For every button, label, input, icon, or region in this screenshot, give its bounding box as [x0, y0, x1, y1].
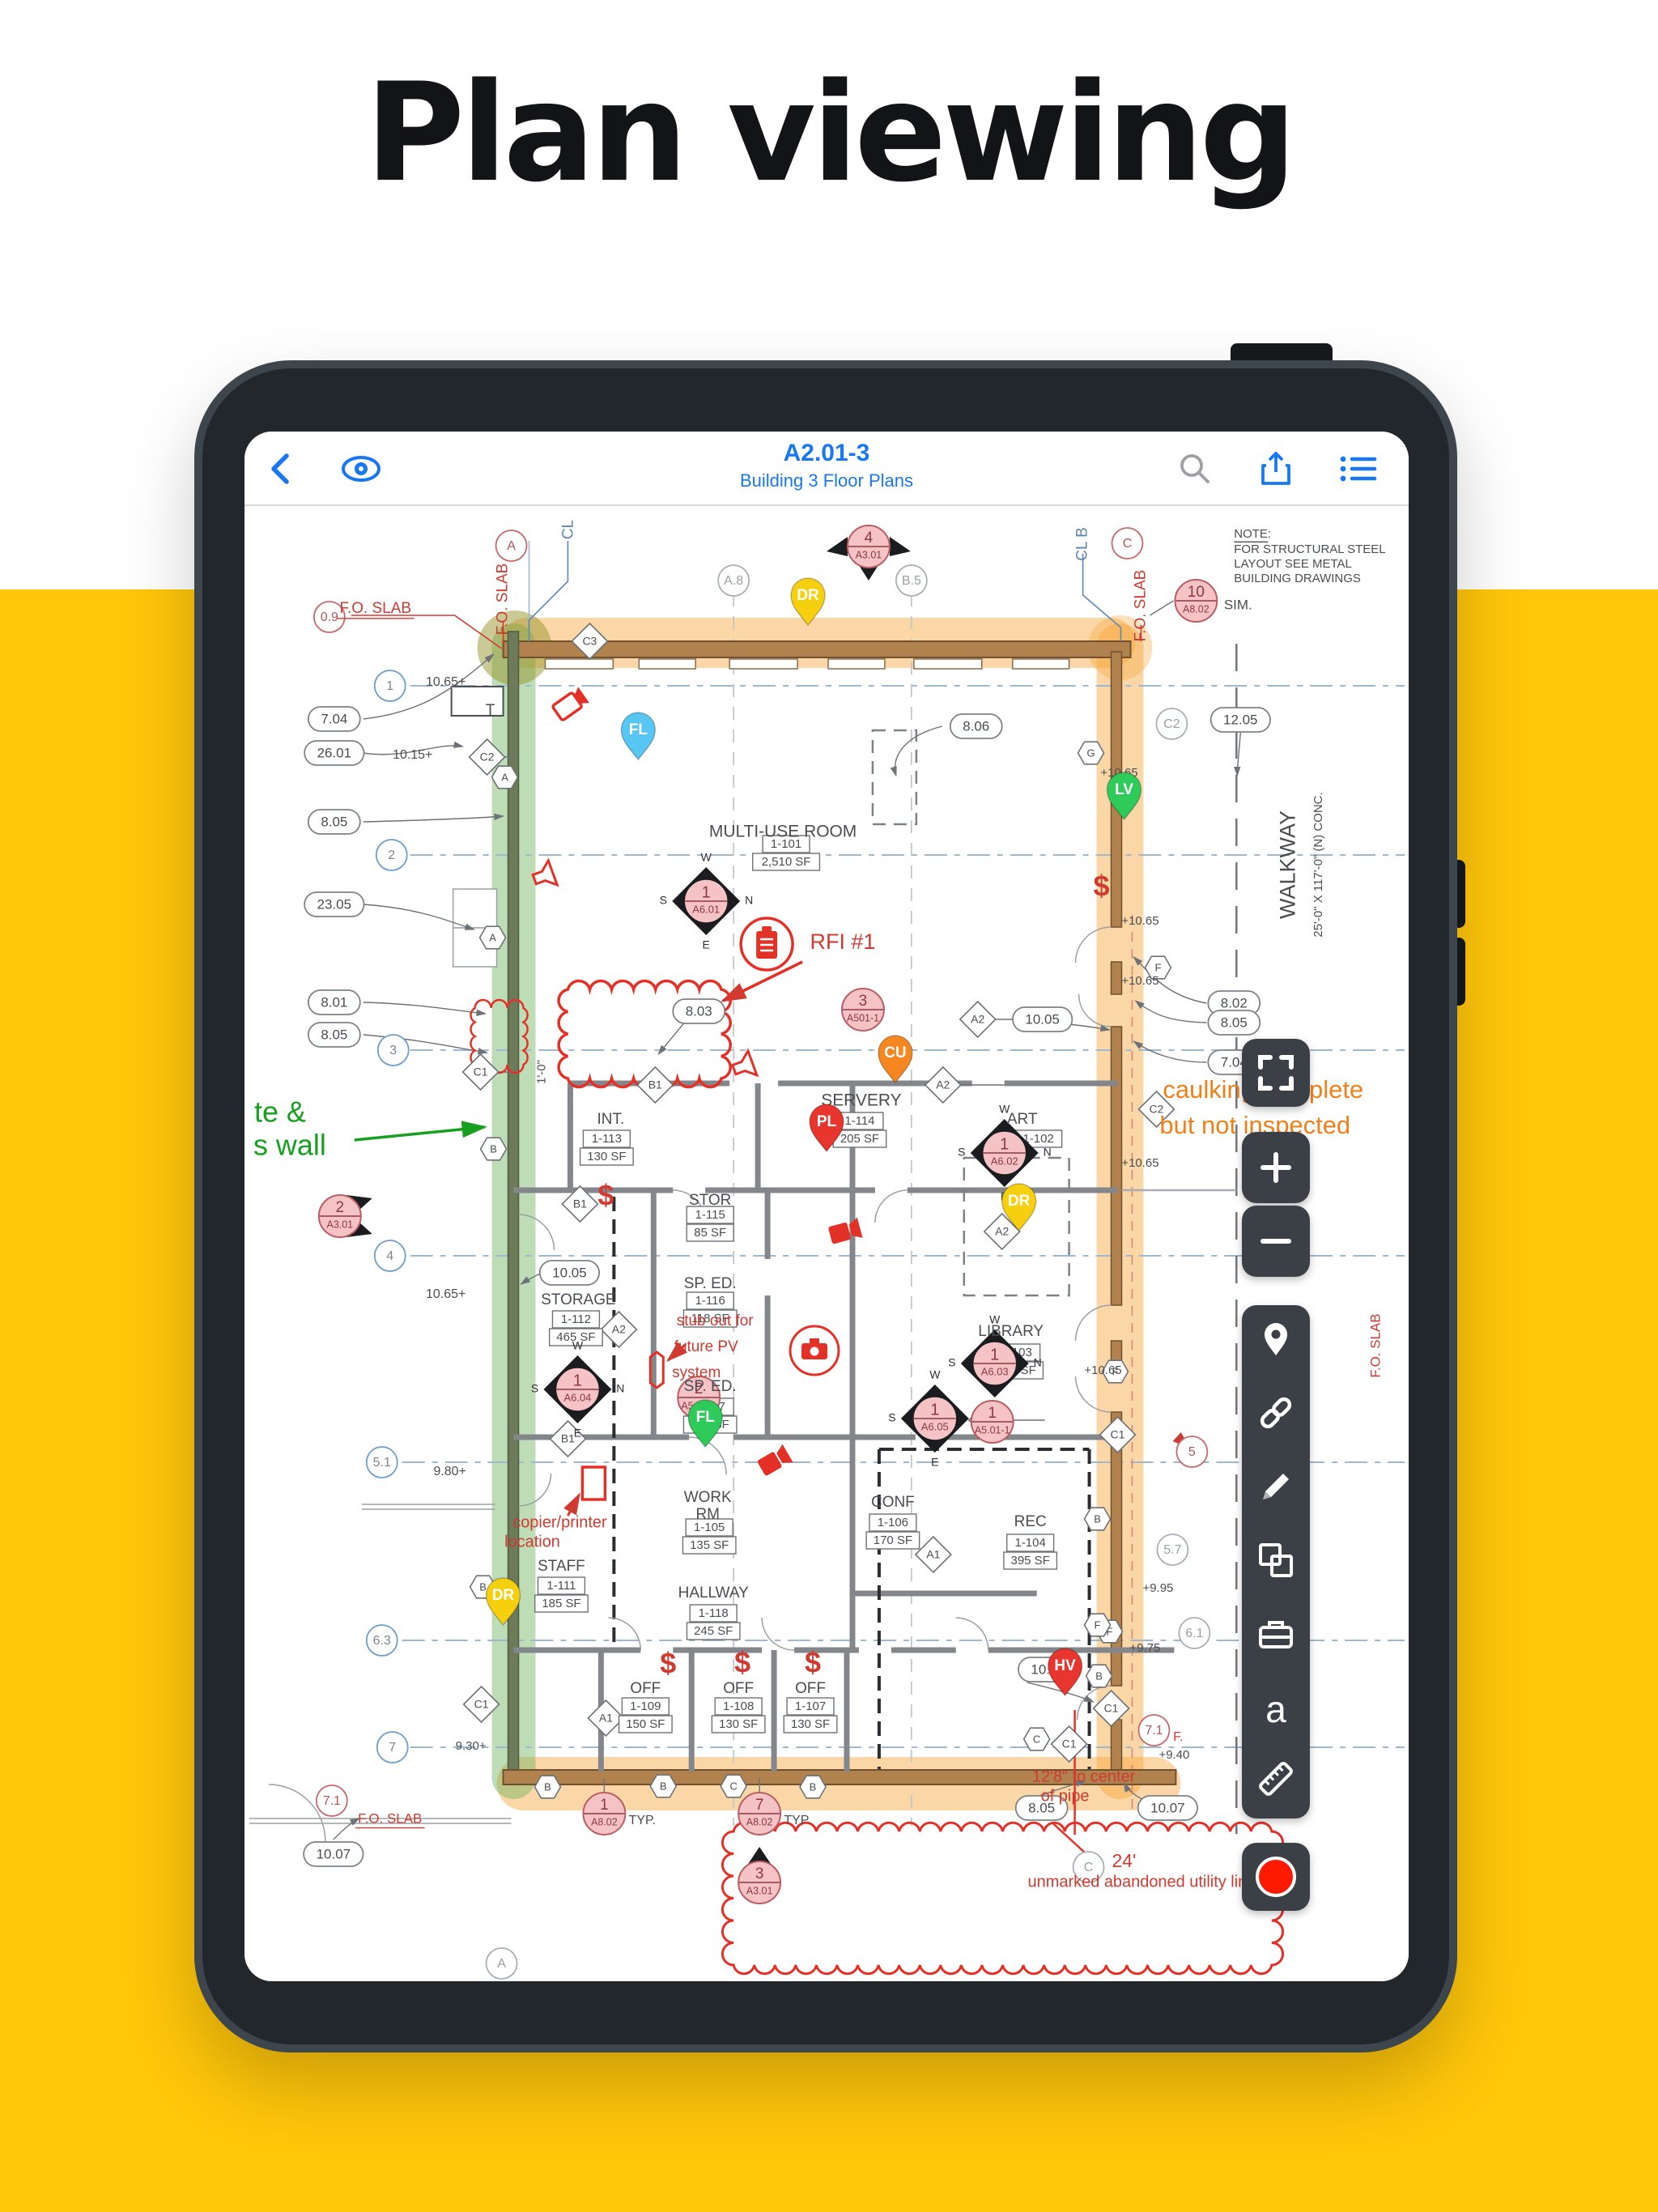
- plan-text: 1-114: [844, 1114, 874, 1128]
- plan-text: 1: [988, 1405, 997, 1422]
- keynote-hex-A: A: [480, 926, 506, 949]
- search-icon: [1177, 451, 1213, 487]
- plan-text: 0.9: [321, 610, 338, 624]
- text-tool-button[interactable]: a: [1265, 1691, 1286, 1728]
- keynote-hex-B: B: [1086, 1665, 1112, 1687]
- plan-text: 8.05: [321, 814, 347, 829]
- plan-text: 205 SF: [840, 1132, 879, 1146]
- plan-text: 1-109: [630, 1699, 661, 1713]
- page-title: Plan viewing: [0, 52, 1658, 215]
- plan-text: DR: [797, 587, 819, 604]
- plan-text: CU: [884, 1044, 906, 1061]
- plan-text: E: [931, 1456, 938, 1469]
- plan-text: 8.01: [321, 994, 347, 1010]
- plan-text: NOTE:: [1234, 527, 1271, 541]
- search-button[interactable]: [1177, 451, 1213, 487]
- record-icon: [1252, 1853, 1300, 1901]
- plan-text: B: [810, 1780, 817, 1793]
- plan-text: B: [479, 1580, 487, 1593]
- plan-text: 8.06: [963, 718, 989, 734]
- plan-text: 1-104: [1015, 1536, 1046, 1550]
- plan-text: F: [1095, 1619, 1101, 1631]
- plan-text: C2: [480, 751, 495, 764]
- callout-8.05: 8.05: [1208, 1010, 1260, 1035]
- plan-text: A8.02: [1183, 603, 1209, 615]
- sheet-subtitle: Building 3 Floor Plans: [244, 470, 1409, 491]
- plan-text: B: [660, 1780, 667, 1792]
- grid-bubble-C2: C2: [1156, 708, 1187, 739]
- plan-text: 10.65+: [426, 675, 466, 689]
- plan-text: PL: [817, 1113, 836, 1130]
- plan-text: FL: [629, 721, 648, 738]
- plan-text: TYP.: [784, 1814, 810, 1827]
- plan-text: 170 SF: [874, 1534, 912, 1547]
- plan-text: A6.04: [563, 1391, 591, 1403]
- plan-text: WALKWAY: [1275, 810, 1299, 919]
- keynote-A1: A1: [588, 1700, 623, 1736]
- plan-text: 245 SF: [694, 1624, 733, 1638]
- keynote-A2: A2: [960, 1002, 996, 1037]
- plan-text: 1-112: [561, 1312, 591, 1326]
- plan-text: A2: [971, 1013, 984, 1026]
- minus-icon: [1258, 1223, 1294, 1259]
- navigation-bar: A2.01-3 Building 3 Floor Plans: [244, 432, 1409, 506]
- grid-bubble-6.1: 6.1: [1179, 1618, 1209, 1648]
- dollar-annotation[interactable]: $: [734, 1645, 750, 1678]
- plan-text: LV: [1115, 781, 1133, 798]
- plan-text: CL: [559, 520, 576, 539]
- pin-tool-button[interactable]: [1258, 1321, 1294, 1361]
- plan-text: FOR STRUCTURAL STEEL: [1234, 542, 1385, 556]
- plan-text: E: [574, 1427, 581, 1440]
- toolbox-button[interactable]: [1257, 1616, 1295, 1657]
- grid-bubble-7: 7: [377, 1732, 408, 1763]
- ipad-device: A2.01-3 Building 3 Floor Plans: [194, 360, 1457, 2052]
- plan-text: N: [1044, 1146, 1052, 1159]
- keynote-hex-B: B: [800, 1776, 826, 1798]
- app-screen: A2.01-3 Building 3 Floor Plans: [244, 432, 1409, 1981]
- location-pin-icon: [1258, 1321, 1294, 1357]
- plan-text: DR: [1008, 1193, 1031, 1210]
- callout-8.03: 8.03: [673, 999, 725, 1023]
- plan-text: E: [703, 938, 710, 951]
- plan-text: 2: [388, 849, 395, 862]
- callout-8.05: 8.05: [308, 1023, 360, 1047]
- plan-text: 1-113: [592, 1132, 622, 1146]
- plan-text: A2: [995, 1225, 1009, 1238]
- ruler-tool-button[interactable]: [1257, 1760, 1295, 1802]
- plan-text: FL: [696, 1409, 715, 1426]
- plan-text: 135 SF: [690, 1538, 729, 1552]
- room-tag-1-104: 1-104395 SF: [1004, 1534, 1057, 1569]
- callout-10.05: 10.05: [540, 1261, 599, 1285]
- plan-text: 5: [1188, 1445, 1196, 1459]
- plan-text: 1: [1000, 1135, 1009, 1153]
- plan-text: future PV: [674, 1338, 738, 1355]
- plan-text: N: [1034, 1356, 1042, 1369]
- plan-text: S: [888, 1411, 895, 1424]
- video-annotation[interactable]: [827, 1218, 862, 1246]
- room-tag-1-109: 1-109150 SF: [619, 1698, 673, 1733]
- zoom-out-button[interactable]: [1242, 1206, 1310, 1277]
- keynote-hex-B: B: [1085, 1508, 1111, 1530]
- shapes-tool-button[interactable]: [1257, 1542, 1295, 1583]
- task-pin-FL[interactable]: FL: [621, 713, 655, 759]
- plan-text: s wall: [253, 1128, 326, 1161]
- callout-12.05: 12.05: [1211, 708, 1270, 732]
- callout-8.01: 8.01: [308, 990, 360, 1015]
- grid-bubble-7.1: 7.1: [317, 1785, 347, 1816]
- plan-text: C1: [1104, 1702, 1119, 1715]
- plan-canvas[interactable]: 7.0426.018.0523.058.018.058.0612.058.031…: [244, 506, 1409, 1981]
- plan-text: CONF: [871, 1494, 915, 1511]
- plan-text: OFF: [795, 1680, 826, 1697]
- fullscreen-icon: [1257, 1054, 1295, 1091]
- plan-text: S: [958, 1146, 965, 1159]
- plan-text: B: [1095, 1670, 1103, 1682]
- plan-text: 1: [573, 1372, 582, 1389]
- plan-text: SP. ED.: [684, 1275, 737, 1292]
- plan-text: 185 SF: [542, 1597, 580, 1610]
- plan-text: 395 SF: [1011, 1554, 1050, 1568]
- plan-text: 7.1: [1145, 1724, 1163, 1738]
- plan-text: +10.65: [1121, 914, 1158, 928]
- list-icon: [1339, 451, 1378, 487]
- grid-bubble-6.3: 6.3: [367, 1625, 397, 1656]
- plan-text: F: [1154, 961, 1161, 973]
- share-button[interactable]: [1258, 451, 1294, 487]
- fullscreen-button[interactable]: [1242, 1039, 1310, 1107]
- keynote-hex-C: C: [1024, 1728, 1050, 1750]
- plan-text: 23.05: [317, 896, 351, 912]
- plan-text: +10.65: [1084, 1363, 1121, 1377]
- plan-text: 1-115: [695, 1208, 725, 1222]
- grid-bubble-C: C: [1112, 528, 1143, 559]
- plan-text: 7.1: [323, 1794, 341, 1808]
- grid-bubble-2: 2: [376, 840, 407, 870]
- plan-text: F.O. SLAB: [340, 600, 412, 617]
- plan-text: 10.05: [552, 1265, 586, 1280]
- detail-marker-10-A8.02: 10A8.02: [1175, 580, 1217, 622]
- plan-text: B: [490, 1142, 497, 1155]
- record-button[interactable]: [1242, 1843, 1310, 1911]
- task-pin-HV[interactable]: HV: [1048, 1648, 1082, 1695]
- detail-marker-3-A3.01: 3A3.01: [738, 1847, 780, 1904]
- compass-A6.01: 1A6.01WSNE: [660, 851, 754, 951]
- plan-text: 2,510 SF: [762, 855, 811, 869]
- plan-text: G: [1086, 747, 1095, 759]
- copier-annotation[interactable]: [568, 1467, 605, 1516]
- grid-bubble-3: 3: [378, 1035, 409, 1066]
- keynote-hex-B: B: [535, 1776, 561, 1798]
- plus-icon: [1258, 1150, 1294, 1185]
- plan-text: 12'8" to center: [1032, 1767, 1136, 1785]
- plan-text: B: [1094, 1512, 1101, 1525]
- plan-text: 7: [755, 1797, 764, 1814]
- plan-text: B1: [573, 1197, 587, 1210]
- plan-text: C: [1033, 1733, 1040, 1745]
- room-tag-1-111: 1-111185 SF: [535, 1577, 589, 1612]
- callout-10.07: 10.07: [304, 1842, 363, 1866]
- plan-text: 1: [702, 883, 711, 901]
- grid-bubble-B.5: B.5: [896, 565, 927, 596]
- plan-text: A501-1: [847, 1012, 879, 1023]
- camera-annotation[interactable]: [551, 687, 589, 721]
- plan-text: 7: [389, 1741, 396, 1755]
- callout-8.05: 8.05: [308, 810, 360, 834]
- plan-text: A6.02: [991, 1155, 1018, 1167]
- plan-text: 5.7: [1163, 1543, 1181, 1557]
- plan-text: 130 SF: [719, 1717, 758, 1731]
- room-tags: 1-1012,510 SF1-113130 SF1-114205 SF1-102…: [535, 836, 1062, 1733]
- sheet-title-block[interactable]: A2.01-3 Building 3 Floor Plans: [244, 440, 1409, 491]
- plan-text: of pipe: [1041, 1787, 1090, 1805]
- plan-text: N: [616, 1382, 624, 1395]
- plan-text: 6.3: [373, 1634, 391, 1648]
- plan-text: +9.95: [1142, 1581, 1173, 1595]
- plan-text: F.: [1173, 1730, 1183, 1744]
- plan-text: W: [572, 1339, 584, 1352]
- revision-cloud-bottom[interactable]: [722, 1823, 1282, 1973]
- plan-text: TYP.: [629, 1814, 656, 1827]
- plan-text: 24': [1112, 1850, 1137, 1871]
- plan-text: A1: [599, 1712, 613, 1725]
- plan-text: RM: [695, 1506, 719, 1523]
- plan-text: A1: [926, 1548, 940, 1561]
- grid-bubble-A: A: [496, 530, 527, 561]
- video-annotation[interactable]: [756, 1444, 793, 1478]
- detail-marker-1-A8.02: 1A8.02: [583, 1793, 625, 1835]
- callout-8.06: 8.06: [950, 714, 1002, 738]
- plan-text: A: [501, 771, 508, 783]
- callout-10.07: 10.07: [1138, 1796, 1197, 1820]
- room-tag-1-106: 1-106170 SF: [866, 1514, 920, 1549]
- plan-text: 1-111: [546, 1579, 576, 1593]
- plan-text: A3.01: [856, 549, 882, 560]
- plan-text: S: [660, 894, 667, 907]
- room-tag-1-113: 1-113130 SF: [580, 1130, 634, 1165]
- plan-text: A: [497, 1957, 506, 1971]
- plan-text: C1: [474, 1698, 489, 1711]
- plan-text: 1: [930, 1401, 939, 1419]
- plan-text: A: [489, 931, 496, 943]
- plan-text: copier/printer: [512, 1513, 607, 1531]
- plan-text: A6.05: [921, 1420, 949, 1432]
- callout-23.05: 23.05: [304, 892, 363, 917]
- dollar-annotation[interactable]: $: [1094, 869, 1110, 902]
- list-button[interactable]: [1339, 451, 1375, 487]
- plan-text: A5.01-1: [975, 1424, 1010, 1436]
- plan-text: 150 SF: [626, 1717, 665, 1731]
- keynote-hex-G: G: [1078, 742, 1104, 764]
- keynote-B1: B1: [637, 1067, 673, 1103]
- plan-text: F.O. SLAB: [1132, 570, 1149, 642]
- grid-bubble-5.7: 5.7: [1157, 1534, 1188, 1565]
- plan-text: INT.: [597, 1111, 625, 1128]
- plan-text: 4: [386, 1249, 393, 1263]
- task-pin-CU[interactable]: CU: [878, 1036, 912, 1083]
- rfi-marker[interactable]: [723, 918, 802, 1001]
- plan-text: STOR: [689, 1192, 731, 1209]
- plan-text: WORK: [684, 1489, 732, 1506]
- plan-text: 1'-0": [534, 1060, 548, 1084]
- pencil-icon: [1258, 1469, 1294, 1504]
- dollar-annotation[interactable]: $: [597, 1178, 614, 1211]
- plan-text: 26.01: [317, 745, 351, 760]
- plan-text: 10.05: [1025, 1011, 1059, 1027]
- detail-marker-2-A3.01: 2A3.01: [319, 1195, 372, 1237]
- plan-text: +9.75: [1130, 1641, 1161, 1655]
- plan-text: 8.05: [1221, 1015, 1248, 1030]
- plan-text: S: [531, 1382, 538, 1395]
- plan-text: SIM.: [1224, 597, 1252, 612]
- plan-text: 9.30+: [456, 1739, 487, 1753]
- green-arrow-annotation: [355, 1127, 485, 1140]
- plan-text: location: [504, 1533, 560, 1551]
- plan-text: A3.01: [327, 1219, 354, 1230]
- plan-text: HALLWAY: [678, 1585, 749, 1602]
- revision-cloud[interactable]: [559, 981, 730, 1087]
- room-tag-1-108: 1-108130 SF: [712, 1698, 765, 1733]
- callout-26.01: 26.01: [304, 741, 363, 765]
- compass-A6.04: 1A6.04WSNE: [531, 1339, 625, 1440]
- plan-text: STAFF: [538, 1558, 585, 1575]
- detail-marker-7-A8.02: 7A8.02: [738, 1793, 780, 1835]
- plan-text: +10.65: [1121, 974, 1158, 988]
- grid-bubble-5: 5: [1176, 1436, 1207, 1467]
- page: Plan viewing A2.01-3 Building 3 Floor Pl…: [0, 0, 1658, 2212]
- plan-text: 85 SF: [694, 1226, 726, 1240]
- plan-text: HV: [1054, 1657, 1076, 1674]
- plan-text: 3: [389, 1044, 397, 1057]
- grid-bubble-A.8: A.8: [718, 565, 749, 596]
- plan-text: 10.65+: [426, 1287, 466, 1301]
- plan-text: B: [544, 1780, 551, 1793]
- plan-text: 10: [1188, 584, 1205, 601]
- plan-text: CL B: [1074, 527, 1091, 560]
- plan-text: A3.01: [746, 1885, 773, 1896]
- sheet-title: A2.01-3: [244, 440, 1409, 467]
- plan-text: stub out for: [677, 1312, 754, 1329]
- plan-text: OFF: [630, 1680, 661, 1697]
- keynote-hex-F: F: [1085, 1614, 1111, 1636]
- share-icon: [1258, 451, 1294, 487]
- keynote-hex-A: A: [492, 766, 518, 789]
- plan-text: 1: [386, 679, 393, 693]
- plan-text: 6.1: [1185, 1627, 1203, 1640]
- keynote-hex-C: C: [721, 1775, 746, 1797]
- room-tag-1-115: 1-11585 SF: [687, 1206, 733, 1241]
- plan-text: MULTI-USE ROOM: [709, 823, 857, 841]
- keynote-hex-B: B: [481, 1138, 507, 1160]
- keynote-A2: A2: [601, 1312, 636, 1347]
- plan-text: +10.65: [1121, 1156, 1158, 1170]
- plan-text: A8.02: [746, 1816, 773, 1827]
- shapes-icon: [1257, 1542, 1295, 1579]
- plan-text: B1: [648, 1078, 662, 1091]
- task-pin-FL[interactable]: FL: [688, 1400, 722, 1447]
- plan-text: 7.04: [321, 711, 347, 726]
- keynote-A1: A1: [916, 1537, 951, 1572]
- plan-text: C: [729, 1780, 737, 1792]
- detail-marker-3-A501-1: 3A501-1: [842, 989, 884, 1031]
- plan-text: 8.05: [321, 1027, 347, 1042]
- plan-text: RFI #1: [810, 929, 876, 954]
- plan-text: 8.02: [1221, 995, 1248, 1010]
- callout-7.04: 7.04: [308, 707, 360, 731]
- keynote-hex-B: B: [650, 1775, 676, 1797]
- plan-text: 9.80+: [433, 1465, 466, 1478]
- dollar-annotation[interactable]: $: [805, 1645, 821, 1678]
- plan-text: 1-118: [699, 1606, 729, 1620]
- plan-text: A6.03: [981, 1365, 1009, 1377]
- plan-text: F.O. SLAB: [358, 1810, 422, 1826]
- callout-10.05: 10.05: [1013, 1007, 1072, 1032]
- keynote-A2: A2: [925, 1067, 961, 1103]
- plan-text: 1-106: [878, 1516, 908, 1529]
- plan-text: DR: [492, 1587, 515, 1604]
- grid-bubble-A: A: [487, 1948, 517, 1979]
- plan-text: W: [701, 851, 712, 864]
- plan-text: C2: [1163, 717, 1180, 731]
- plan-text: 8.03: [686, 1003, 712, 1019]
- plan-text: F.O. SLAB: [1368, 1313, 1384, 1377]
- plan-text: A2: [936, 1078, 950, 1091]
- pencil-tool-button[interactable]: [1258, 1469, 1294, 1508]
- plan-text: SP. ED.: [684, 1378, 737, 1395]
- plan-text: 2: [336, 1199, 345, 1216]
- link-tool-button[interactable]: [1257, 1394, 1295, 1436]
- plan-text: 12.05: [1223, 712, 1257, 727]
- plan-text: B.5: [902, 574, 921, 588]
- plan-text: A8.02: [591, 1816, 618, 1827]
- photo-annotation[interactable]: [790, 1326, 839, 1375]
- plan-text: A.8: [724, 574, 743, 588]
- plan-text: LAYOUT SEE METAL: [1234, 557, 1351, 571]
- plan-text: A: [507, 539, 516, 553]
- plan-text: S: [948, 1356, 955, 1369]
- plan-text: 130 SF: [587, 1150, 626, 1163]
- plan-text: 10.15+: [393, 748, 432, 762]
- plan-text: 25'-0" X 117'-0" (N) CONC.: [1312, 792, 1325, 937]
- plan-text: 1-116: [695, 1294, 725, 1308]
- plan-text: LIBRARY: [978, 1323, 1044, 1340]
- link-icon: [1257, 1394, 1295, 1431]
- plan-text: C: [1123, 537, 1133, 551]
- ruler-icon: [1257, 1760, 1295, 1797]
- plan-text: OFF: [723, 1680, 754, 1697]
- zoom-in-button[interactable]: [1242, 1132, 1310, 1203]
- keynote-C1: C1: [1052, 1726, 1087, 1762]
- plan-text: C1: [474, 1066, 488, 1078]
- toolbox-icon: [1257, 1616, 1295, 1653]
- plan-text: B1: [561, 1432, 575, 1445]
- plan-text: BUILDING DRAWINGS: [1234, 572, 1361, 585]
- plan-text: 1: [990, 1346, 999, 1363]
- plan-text: te &: [254, 1095, 306, 1128]
- grid-bubble-7.1: 7.1: [1138, 1715, 1169, 1746]
- dollar-annotation[interactable]: $: [660, 1646, 676, 1679]
- floor-plan: 7.0426.018.0523.058.018.058.0612.058.031…: [244, 506, 1409, 1981]
- grid-bubble-1: 1: [375, 670, 406, 701]
- plan-text: C1: [1111, 1428, 1125, 1441]
- plan-text: ART: [1007, 1111, 1038, 1128]
- plan-text: A6.01: [692, 903, 720, 915]
- plan-text: 4: [865, 530, 874, 547]
- plan-text: C1: [1062, 1738, 1077, 1750]
- room-tag-1-105: 1-105135 SF: [682, 1519, 736, 1554]
- text-tool-icon: a: [1265, 1688, 1286, 1730]
